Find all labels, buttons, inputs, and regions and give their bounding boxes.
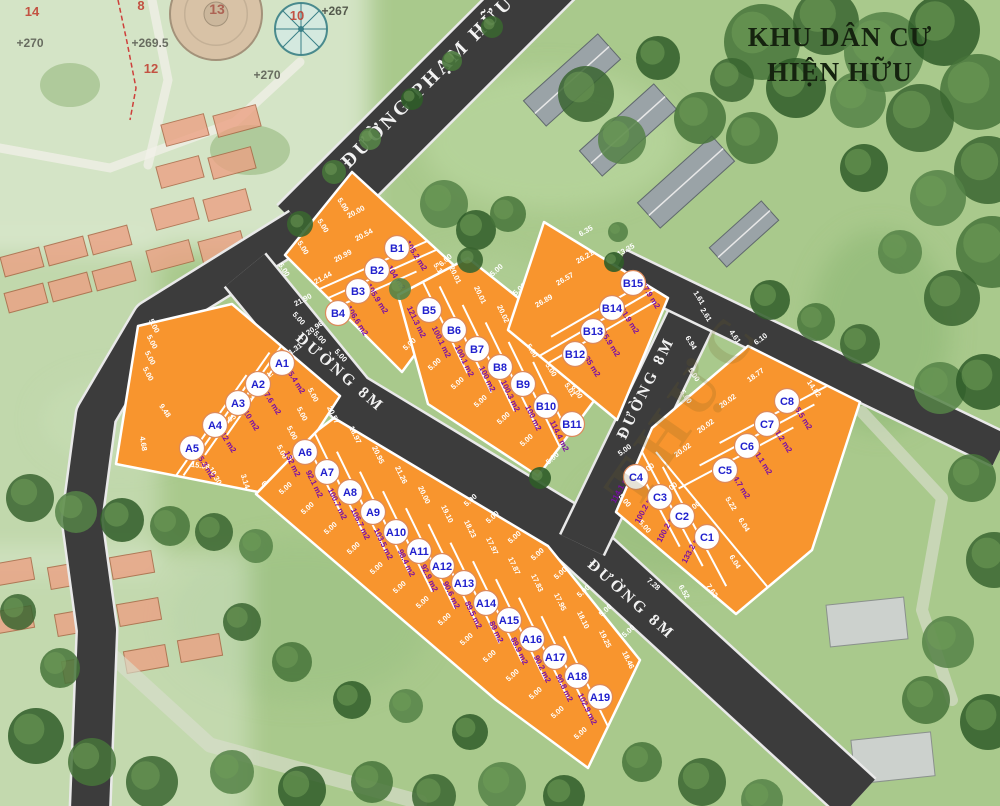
lot-badge-label: A16 <box>522 634 542 646</box>
tree-highlight <box>456 718 476 738</box>
tree-highlight <box>679 97 708 126</box>
lot-badge-label: B5 <box>422 305 436 317</box>
tree-highlight <box>547 779 570 802</box>
elevation-label: 8 <box>137 0 144 13</box>
lot-badge-label: A18 <box>567 671 587 683</box>
lot-badge-label: A5 <box>185 443 199 455</box>
bush-highlight <box>610 224 620 234</box>
lot-badge-label: B14 <box>602 303 623 315</box>
lot-badge-label: B10 <box>536 401 556 413</box>
tree-highlight <box>44 652 66 674</box>
lot-badge-label: A7 <box>320 467 334 479</box>
lot-badge-A1: A1 <box>270 351 295 376</box>
lot-badge-B12: B12 <box>563 342 588 367</box>
lot-badge-A10: A10 <box>384 520 409 545</box>
tree-highlight <box>214 754 238 778</box>
tree-highlight <box>59 495 82 518</box>
tree-highlight <box>962 360 993 391</box>
tree-highlight <box>227 607 248 628</box>
lot-badge-label: A11 <box>409 546 429 558</box>
lot-badge-C2: C2 <box>670 504 695 529</box>
lot-badge-A15: A15 <box>497 608 522 633</box>
title-line-2: HIỆN HỮU <box>700 55 980 90</box>
lot-badge-label: C5 <box>718 465 732 477</box>
tree-highlight <box>73 743 99 769</box>
bush-highlight <box>392 281 403 292</box>
tree-highlight <box>603 121 629 147</box>
lot-badge-label: C1 <box>700 532 714 544</box>
elevation-label: 13 <box>209 1 225 17</box>
lot-badge-B2: B2 <box>365 258 390 283</box>
wheel-hub <box>298 26 304 32</box>
lot-badge-A2: A2 <box>246 372 271 397</box>
tree-highlight <box>919 367 948 396</box>
site-plan-svg: 20.9621.3121.7522.2122.655.005.005.005.0… <box>0 0 1000 806</box>
lot-badge-label: B3 <box>351 286 365 298</box>
lot-badge-label: B2 <box>370 265 384 277</box>
lot-badge-A14: A14 <box>474 591 499 616</box>
tree-highlight <box>930 276 961 307</box>
lot-badge-C7: C7 <box>755 412 780 437</box>
tree-highlight <box>483 767 509 793</box>
lot-badge-B9: B9 <box>511 372 536 397</box>
lot-badge-label: B8 <box>493 362 507 374</box>
lot-badge-label: A19 <box>590 692 610 704</box>
lot-badge-label: B13 <box>583 326 603 338</box>
park-lawn <box>40 63 100 107</box>
house-shape <box>826 597 908 647</box>
bush-highlight <box>404 91 415 102</box>
tree-highlight <box>14 714 45 745</box>
tree-highlight <box>154 510 176 532</box>
tree-highlight <box>104 502 128 526</box>
lot-badge-A13: A13 <box>452 571 477 596</box>
elevation-label: +270 <box>253 68 280 82</box>
gray-building <box>826 597 908 647</box>
lot-badge-A17: A17 <box>543 645 568 670</box>
lot-badge-A5: A5 <box>180 436 205 461</box>
tree-highlight <box>283 771 309 797</box>
lot-badge-label: A3 <box>231 398 245 410</box>
tree-highlight <box>425 185 451 211</box>
lot-badge-A9: A9 <box>361 500 386 525</box>
lot-badge-C6: C6 <box>735 434 760 459</box>
elevation-label: +270 <box>16 36 43 50</box>
lot-badge-B14: B14 <box>600 296 625 321</box>
tree-highlight <box>355 765 378 788</box>
lot-badge-label: B15 <box>623 278 643 290</box>
tree-highlight <box>4 598 24 618</box>
lot-badge-label: A9 <box>366 507 380 519</box>
lot-badge-B13: B13 <box>581 319 606 344</box>
lot-badge-label: A15 <box>499 615 519 627</box>
title-line-1: KHU DÂN CƯ <box>700 20 980 55</box>
lot-badge-A18: A18 <box>565 664 590 689</box>
lot-badge-B6: B6 <box>442 318 467 343</box>
tree-highlight <box>953 459 979 485</box>
elevation-label: +269.5 <box>131 36 168 50</box>
bush-highlight <box>461 251 474 264</box>
lot-badge-C5: C5 <box>713 458 738 483</box>
tree-highlight <box>276 646 298 668</box>
tree-highlight <box>640 40 664 64</box>
tree-highlight <box>916 176 947 207</box>
elevation-label: 14 <box>25 4 40 19</box>
elevation-label: 10 <box>290 8 304 23</box>
lot-badge-label: A17 <box>545 652 565 664</box>
tree-highlight <box>683 763 709 789</box>
elevation-label: 12 <box>144 61 158 76</box>
tree-highlight <box>907 681 933 707</box>
existing-area-title: KHU DÂN CƯ HIỆN HỮU <box>700 20 980 90</box>
tree-highlight <box>844 328 866 350</box>
lot-badge-A19: A19 <box>588 685 613 710</box>
lot-badge-B8: B8 <box>488 355 513 380</box>
elevation-label: +267 <box>321 4 348 18</box>
tree-highlight <box>494 200 514 220</box>
bush-highlight <box>606 254 616 264</box>
tree-highlight <box>242 532 261 551</box>
lot-badge-label: A2 <box>251 379 265 391</box>
tree-highlight <box>882 234 906 258</box>
tree-highlight <box>626 746 648 768</box>
tree-highlight <box>961 143 998 180</box>
lot-badge-label: B12 <box>565 349 585 361</box>
lot-badge-B4: B4 <box>326 301 351 326</box>
lot-badge-label: A8 <box>343 487 357 499</box>
bush-highlight <box>291 215 304 228</box>
tree-highlight <box>754 284 776 306</box>
lot-badge-B7: B7 <box>465 337 490 362</box>
tree-highlight <box>460 214 482 236</box>
lot-badge-label: B6 <box>447 325 461 337</box>
bush-highlight <box>532 470 543 481</box>
lot-badge-A4: A4 <box>203 413 228 438</box>
tree-highlight <box>131 761 160 790</box>
site-plan-stage: 20.9621.3121.7522.2122.655.005.005.005.0… <box>0 0 1000 806</box>
lot-badge-A8: A8 <box>338 480 363 505</box>
lot-badge-label: B4 <box>331 308 346 320</box>
tree-highlight <box>11 479 37 505</box>
tree-highlight <box>199 517 220 538</box>
lot-badge-B1: B1 <box>385 236 410 261</box>
lot-badge-label: B9 <box>516 379 530 391</box>
tree-highlight <box>337 685 358 706</box>
lot-badge-label: B7 <box>470 344 484 356</box>
lot-badge-A11: A11 <box>407 539 432 564</box>
bush-highlight <box>484 19 495 30</box>
lot-badge-A3: A3 <box>226 391 251 416</box>
lot-badge-B10: B10 <box>534 394 559 419</box>
lot-badge-B11: B11 <box>560 412 585 437</box>
lot-badge-label: C6 <box>740 441 754 453</box>
lot-badge-A16: A16 <box>520 627 545 652</box>
tree-highlight <box>745 783 768 806</box>
tree-highlight <box>966 700 997 731</box>
bush-highlight <box>362 131 373 142</box>
lot-badge-label: B11 <box>562 419 582 431</box>
lot-badge-B15: B15 <box>621 271 646 296</box>
tree-highlight <box>801 307 822 328</box>
tree-highlight <box>731 117 760 146</box>
lot-badge-label: A13 <box>454 578 474 590</box>
lot-badge-label: B1 <box>390 243 404 255</box>
bush-highlight <box>444 53 454 63</box>
lot-badge-label: A10 <box>386 527 406 539</box>
lot-badge-A7: A7 <box>315 460 340 485</box>
tree-highlight <box>893 91 930 128</box>
lot-badge-C8: C8 <box>775 389 800 414</box>
lot-badge-B5: B5 <box>417 298 442 323</box>
tree-highlight <box>845 149 871 175</box>
lot-badge-label: A4 <box>208 420 223 432</box>
lot-badge-label: C7 <box>760 419 774 431</box>
lot-badge-label: A1 <box>275 358 289 370</box>
lot-badge-label: A6 <box>298 447 312 459</box>
lot-badge-A12: A12 <box>430 554 455 579</box>
lot-badge-label: C8 <box>780 396 794 408</box>
tree-highlight <box>927 621 956 650</box>
lot-badge-label: C2 <box>675 511 689 523</box>
tree-highlight <box>392 692 411 711</box>
bush-highlight <box>325 163 337 175</box>
lot-badge-B3: B3 <box>346 279 371 304</box>
lot-badge-A6: A6 <box>293 440 318 465</box>
lot-badge-C1: C1 <box>695 525 720 550</box>
tree-highlight <box>416 778 440 802</box>
lot-badge-label: A14 <box>476 598 497 610</box>
tree-highlight <box>564 72 595 103</box>
lot-badge-label: A12 <box>432 561 452 573</box>
